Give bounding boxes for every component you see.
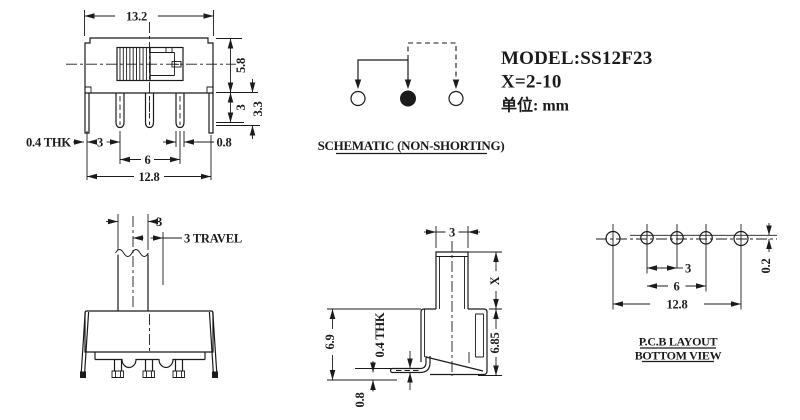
profile-dim-standoff: 0.8	[353, 392, 367, 407]
pcb-caption-line1: P.C.B LAYOUT	[639, 335, 718, 349]
profile-dim-knob-width: 3	[449, 226, 455, 240]
profile-dim-pin-thickness: 0.4 THK	[373, 312, 387, 357]
x-spec: X=2-10	[501, 72, 562, 93]
terminal-common-filled	[400, 91, 416, 107]
front-dim-pin-width: 0.8	[217, 136, 232, 150]
front-dim-pin-span: 6	[144, 153, 150, 167]
front-dim-top-width: 13.2	[126, 10, 147, 24]
side-view-drawing: 3 3 TRAVEL	[80, 214, 242, 378]
front-dim-thickness: 0.4 THK	[26, 136, 71, 150]
pcb-dim-width: 12.8	[666, 298, 687, 312]
front-dim-leg-to-pin: 3	[97, 136, 103, 150]
pcb-layout-drawing: 0.2 3 6 12.8 P.C.B LAYOUT BOTTOM VIEW	[596, 223, 777, 363]
schematic-arrow-icon	[355, 80, 459, 90]
terminal-open-left	[351, 92, 365, 106]
front-dim-pin-length: 3	[234, 104, 248, 110]
front-dim-body-height: 5.8	[234, 58, 248, 73]
profile-dim-body-height: 6.85	[488, 332, 502, 353]
schematic-diagram: SCHEMATIC (NON-SHORTING)	[318, 43, 505, 154]
pcb-dim-pitch: 3	[685, 262, 691, 276]
front-dim-leg-length: 3.3	[251, 101, 265, 116]
technical-drawing-sheet: 13.2 5.8 3 3.3 0.4 THK 3 0	[0, 0, 800, 420]
side-dim-knob-width: 3	[156, 215, 162, 229]
front-view-drawing: 13.2 5.8 3 3.3 0.4 THK 3 0	[26, 10, 265, 185]
title-block: MODEL:SS12F23 X=2-10 单位: mm	[501, 48, 652, 115]
unit-label: 单位: mm	[501, 96, 570, 115]
profile-dim-total-height: 6.9	[323, 334, 337, 349]
terminal-open-right	[449, 92, 463, 106]
profile-view-drawing: 3 6.9 X 6.85 0.4 THK 0.8	[323, 226, 502, 408]
drawing-canvas: 13.2 5.8 3 3.3 0.4 THK 3 0	[0, 0, 800, 420]
model-number: MODEL:SS12F23	[501, 48, 652, 69]
profile-dim-actuator-height: X	[488, 276, 502, 285]
pcb-dim-row-offset: 0.2	[759, 258, 773, 273]
front-dim-leg-span: 12.8	[138, 170, 159, 184]
schematic-caption: SCHEMATIC (NON-SHORTING)	[318, 138, 505, 153]
side-dim-travel: 3 TRAVEL	[184, 232, 242, 246]
pcb-caption-line2: BOTTOM VIEW	[635, 349, 722, 363]
pcb-dim-span: 6	[673, 280, 679, 294]
